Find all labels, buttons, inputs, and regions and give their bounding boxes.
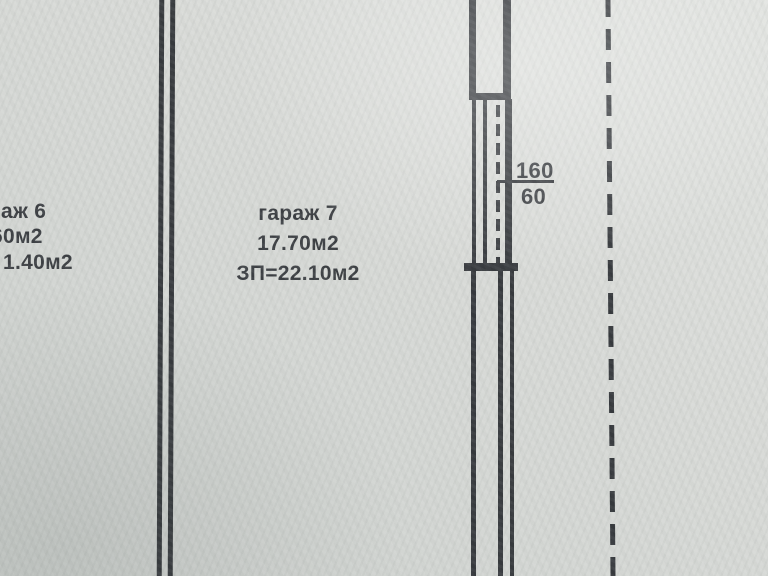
floor-plan-photo: 160 60 аж 6 60м2 1.40м2 гараж 7 17.70м2 …	[0, 0, 768, 576]
window-sill-cap	[464, 263, 518, 271]
window-dimension-sill: 60	[521, 186, 546, 208]
garage7-name: гараж 7	[234, 202, 362, 227]
wall-right-lower-line-left	[471, 271, 476, 576]
garage6-total-area: 1.40м2	[3, 252, 73, 273]
window-dimension-fraction-line	[497, 180, 554, 183]
garage7-area: 17.70м2	[234, 232, 362, 257]
plan-drawing: 160 60 аж 6 60м2 1.40м2 гараж 7 17.70м2 …	[0, 0, 768, 576]
window-dashed-line	[496, 105, 500, 265]
window-dimension-width: 160	[516, 160, 554, 182]
window-frame-line-2	[483, 99, 487, 266]
wall-right-lower-line-right	[510, 271, 514, 576]
wall-right-upper-line-right	[503, 0, 511, 98]
garage7-label-block: гараж 7 17.70м2 ЗП=22.10м2	[234, 202, 362, 291]
wall-right-upper-line-left	[469, 0, 476, 98]
boundary-dashed-line	[605, 0, 615, 576]
garage7-total-area: ЗП=22.10м2	[234, 262, 362, 287]
garage6-area: 60м2	[0, 226, 43, 247]
window-frame-line-1	[472, 99, 476, 266]
wall-left-line-inner	[168, 0, 176, 576]
wall-right-lower-line-mid	[498, 271, 503, 576]
wall-left-line-outer	[157, 0, 165, 576]
garage6-name: аж 6	[1, 201, 46, 222]
